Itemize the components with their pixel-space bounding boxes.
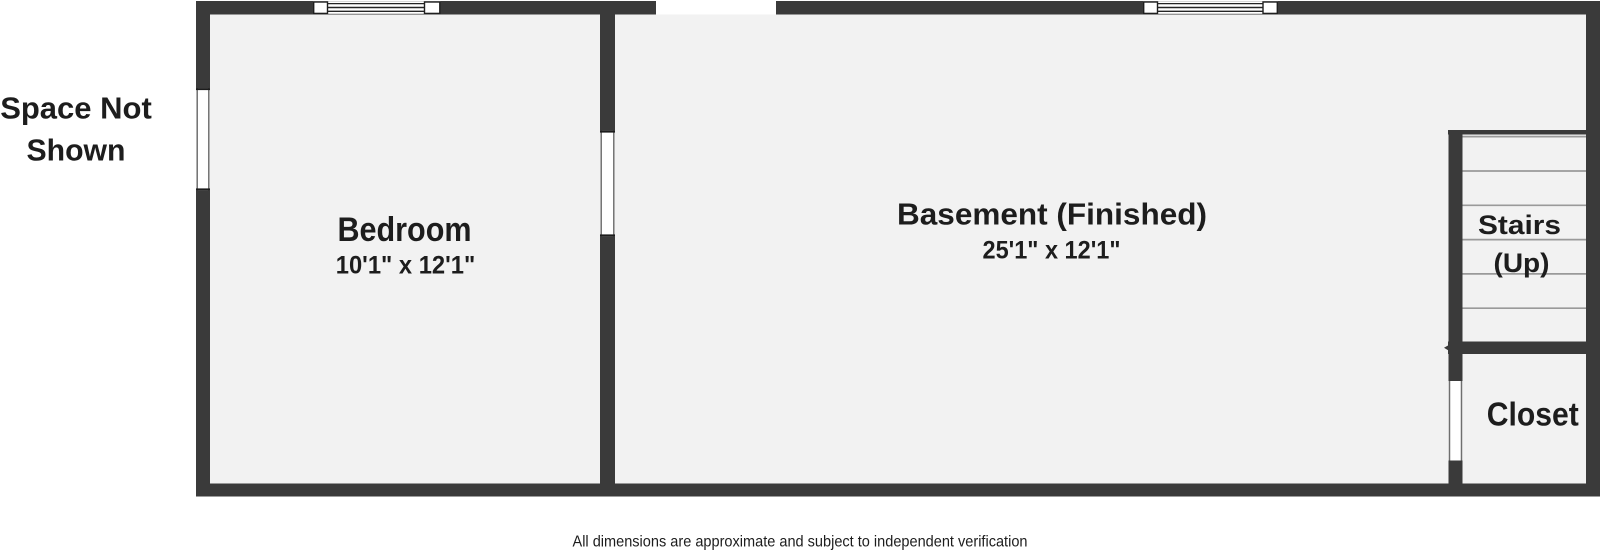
svg-text:All dimensions are approximate: All dimensions are approximate and subje…	[573, 534, 1028, 550]
svg-text:25'1" x 12'1": 25'1" x 12'1"	[983, 237, 1121, 265]
svg-text:Bedroom: Bedroom	[338, 211, 472, 249]
svg-text:(Up): (Up)	[1494, 248, 1550, 278]
svg-text:Closet: Closet	[1487, 396, 1579, 433]
svg-text:Shown: Shown	[27, 133, 126, 168]
svg-text:Basement (Finished): Basement (Finished)	[897, 197, 1207, 232]
svg-text:Space Not: Space Not	[0, 91, 152, 126]
svg-text:Stairs: Stairs	[1478, 210, 1561, 240]
svg-text:10'1" x 12'1": 10'1" x 12'1"	[336, 252, 476, 280]
